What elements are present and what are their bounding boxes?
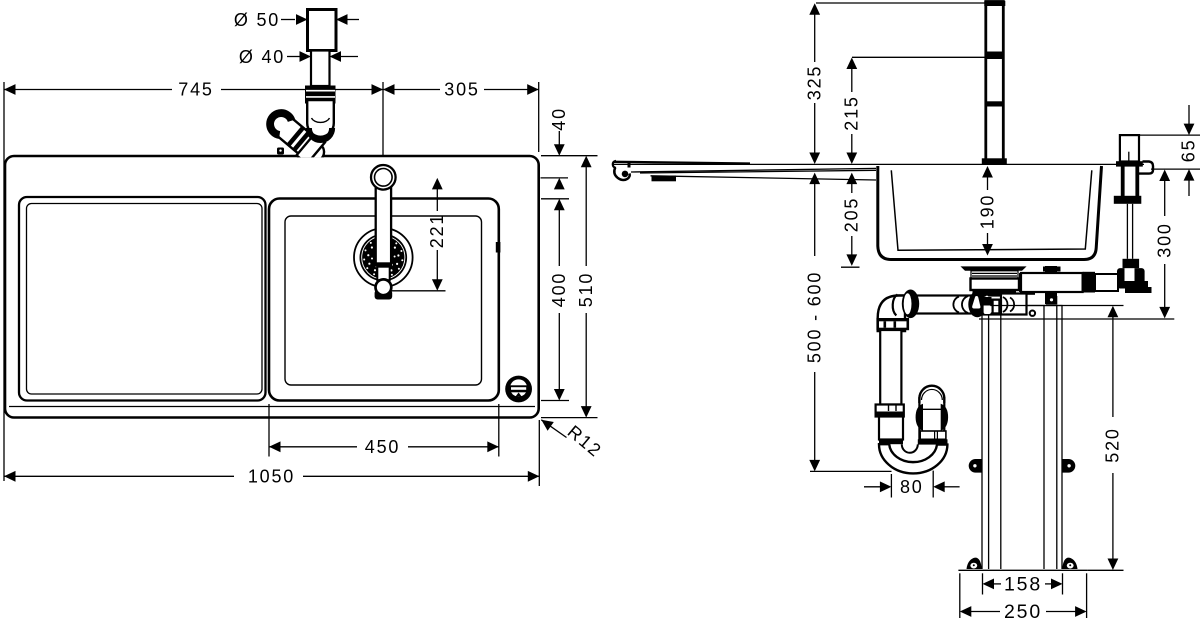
svg-text:190: 190 xyxy=(977,194,997,229)
svg-text:Ø 40: Ø 40 xyxy=(239,47,285,67)
svg-text:158: 158 xyxy=(1004,573,1042,595)
svg-text:500 - 600: 500 - 600 xyxy=(805,271,825,363)
svg-text:520: 520 xyxy=(1103,427,1123,462)
svg-text:205: 205 xyxy=(842,197,862,232)
svg-text:80: 80 xyxy=(900,477,924,497)
svg-text:250: 250 xyxy=(1004,601,1042,623)
svg-text:65: 65 xyxy=(1179,139,1199,163)
svg-text:215: 215 xyxy=(842,95,862,130)
svg-text:305: 305 xyxy=(444,80,479,100)
svg-text:400: 400 xyxy=(549,272,569,307)
svg-text:745: 745 xyxy=(178,80,213,100)
svg-text:510: 510 xyxy=(576,272,596,307)
svg-text:1050: 1050 xyxy=(248,466,295,486)
svg-text:221: 221 xyxy=(427,213,447,248)
svg-text:450: 450 xyxy=(365,437,400,457)
svg-text:40: 40 xyxy=(549,107,569,131)
svg-text:325: 325 xyxy=(805,65,825,100)
svg-text:Ø 50: Ø 50 xyxy=(234,10,280,30)
svg-text:300: 300 xyxy=(1155,222,1175,257)
